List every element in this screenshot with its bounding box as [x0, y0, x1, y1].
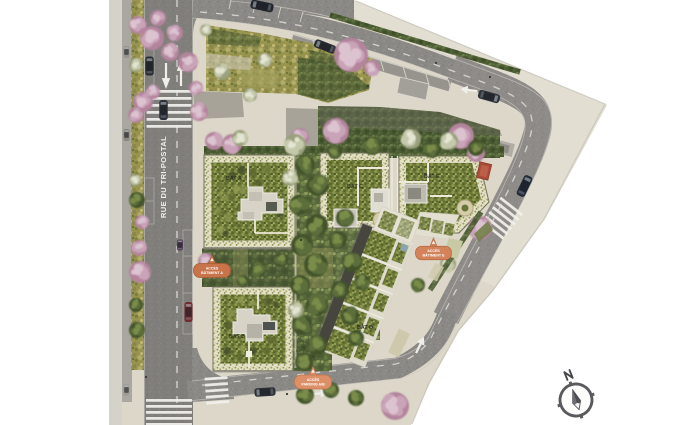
- svg-text:ACCÈS: ACCÈS: [427, 248, 440, 253]
- svg-text:ACCÈS: ACCÈS: [307, 377, 320, 382]
- svg-text:BÂTIMENT E: BÂTIMENT E: [423, 253, 446, 258]
- svg-text:BAT C: BAT C: [347, 184, 363, 190]
- svg-text:BAT A: BAT A: [226, 176, 242, 182]
- svg-text:RUE DU TRI-POSTAL: RUE DU TRI-POSTAL: [159, 136, 168, 218]
- svg-text:ACCÈS: ACCÈS: [206, 265, 219, 270]
- svg-text:BAT E: BAT E: [424, 174, 440, 180]
- svg-text:BAT D: BAT D: [357, 325, 373, 331]
- svg-text:PARKING A/B: PARKING A/B: [301, 383, 325, 387]
- svg-text:BAT B: BAT B: [229, 334, 245, 340]
- svg-text:BÂTIMENT A: BÂTIMENT A: [201, 270, 223, 275]
